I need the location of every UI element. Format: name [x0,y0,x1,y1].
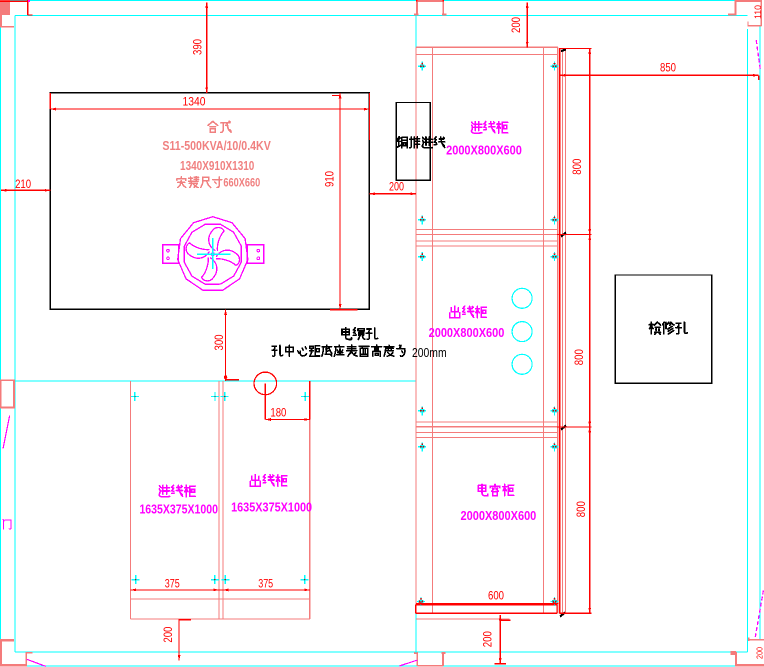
svg-text:300: 300 [212,334,226,350]
svg-text:660X660: 660X660 [223,175,260,189]
svg-text:375: 375 [165,577,180,591]
svg-text:200: 200 [756,647,764,659]
svg-text:375: 375 [258,577,273,591]
svg-text:2000X800X600: 2000X800X600 [429,326,505,340]
svg-text:800: 800 [570,158,584,174]
svg-text:200: 200 [161,626,175,642]
svg-text:2000X800X600: 2000X800X600 [461,509,537,523]
svg-text:850: 850 [660,61,676,75]
svg-text:800: 800 [572,349,586,365]
svg-text:200mm: 200mm [412,346,447,360]
svg-text:600: 600 [488,589,504,603]
svg-text:390: 390 [191,39,205,55]
svg-text:S11-500KVA/10/0.4KV: S11-500KVA/10/0.4KV [162,139,271,153]
svg-text:200: 200 [389,180,404,194]
svg-text:1635X375X1000: 1635X375X1000 [139,503,218,517]
svg-text:1635X375X1000: 1635X375X1000 [231,501,312,515]
svg-text:210: 210 [15,177,31,191]
svg-text:110: 110 [753,5,763,19]
svg-text:1340: 1340 [183,95,206,109]
svg-text:200: 200 [481,631,495,647]
svg-text:800: 800 [574,501,588,517]
svg-text:1340X910X1310: 1340X910X1310 [180,159,254,173]
svg-text:2000X800X600: 2000X800X600 [446,143,522,157]
svg-text:910: 910 [322,171,336,187]
svg-text:200: 200 [509,17,523,33]
svg-text:180: 180 [270,406,286,420]
